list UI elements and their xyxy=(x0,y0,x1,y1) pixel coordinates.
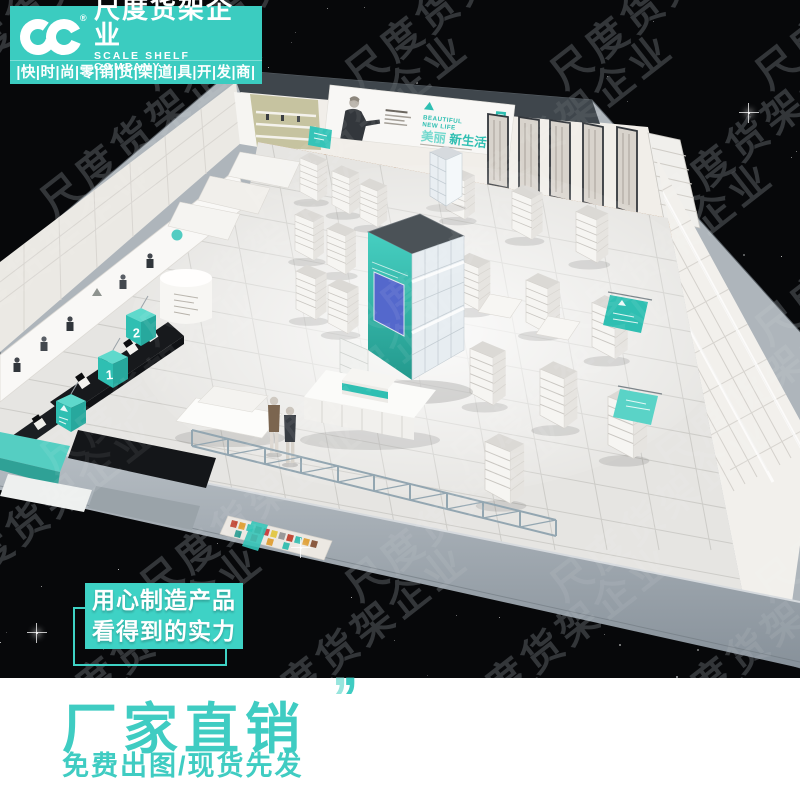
brand-logo-block: ® 尺度货架企业 SCALE SHELF COMPANY |快|时|尚|零|销|… xyxy=(10,6,262,84)
brand-tagline: |快|时|尚|零|销|货|架|道|具|开|发|商| xyxy=(10,60,262,85)
registered-mark: ® xyxy=(80,13,87,23)
star-flare xyxy=(748,112,750,114)
badge-line2: 看得到的实力 xyxy=(92,616,236,647)
cylinder-column xyxy=(160,269,212,324)
star-flare xyxy=(36,632,38,634)
footer-band: 厂家直销 ’’ 免费出图/现货先发 xyxy=(0,678,800,800)
company-name-cn: 尺度货架企业 xyxy=(94,0,256,48)
quote-marks-icon: ’’ xyxy=(332,670,358,728)
teal-stand-sign xyxy=(308,126,332,149)
svg-text:1: 1 xyxy=(105,367,113,382)
svg-text:2: 2 xyxy=(132,325,140,340)
olive-wall-display xyxy=(234,92,321,150)
cc-logo-icon: ® xyxy=(18,10,90,58)
product-promo-image: 尺度货架企业尺度货架企业尺度货架企业尺度货架企业尺度货架企业尺度货架企业尺度货架… xyxy=(0,0,800,800)
quality-badge: 用心制造产品 看得到的实力 xyxy=(85,583,243,649)
footer-subline: 免费出图/现货先发 xyxy=(62,744,304,783)
star-flare xyxy=(300,547,302,549)
badge-line1: 用心制造产品 xyxy=(92,585,236,616)
